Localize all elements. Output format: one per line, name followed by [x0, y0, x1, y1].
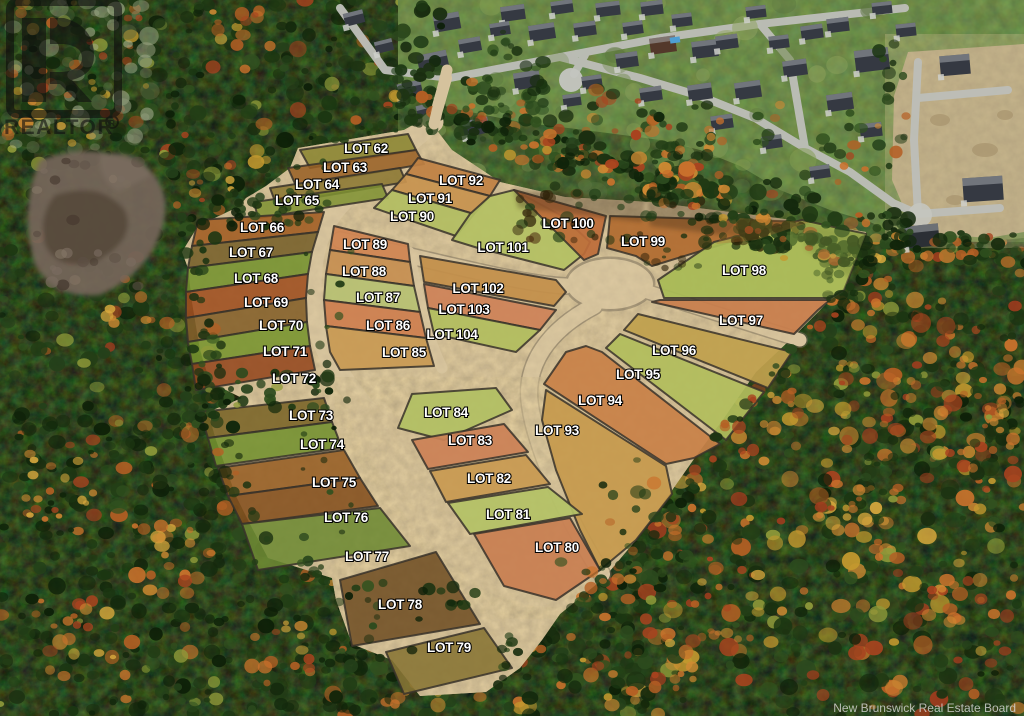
svg-text:LOT 98: LOT 98 [722, 263, 767, 278]
svg-text:LOT 100: LOT 100 [542, 216, 593, 231]
svg-text:LOT 80: LOT 80 [535, 540, 579, 555]
svg-text:LOT 103: LOT 103 [438, 302, 490, 317]
svg-text:LOT 67: LOT 67 [229, 245, 273, 260]
svg-text:LOT 99: LOT 99 [621, 234, 665, 249]
svg-text:LOT 97: LOT 97 [719, 313, 763, 328]
svg-text:LOT 94: LOT 94 [578, 393, 623, 408]
svg-text:LOT 102: LOT 102 [452, 281, 503, 296]
svg-text:LOT 92: LOT 92 [439, 173, 483, 188]
svg-text:REALTOR: REALTOR [4, 116, 114, 139]
svg-text:LOT 64: LOT 64 [295, 177, 340, 192]
svg-text:LOT 81: LOT 81 [486, 507, 531, 522]
svg-text:LOT 75: LOT 75 [312, 475, 357, 490]
svg-text:LOT 89: LOT 89 [343, 237, 387, 252]
svg-text:LOT 63: LOT 63 [323, 160, 368, 175]
svg-text:LOT 86: LOT 86 [366, 318, 411, 333]
svg-text:R: R [109, 118, 115, 128]
svg-text:LOT 101: LOT 101 [477, 240, 529, 255]
svg-text:LOT 96: LOT 96 [652, 343, 697, 358]
svg-text:LOT 66: LOT 66 [240, 220, 285, 235]
svg-text:LOT 76: LOT 76 [324, 510, 369, 525]
svg-text:LOT 71: LOT 71 [263, 344, 308, 359]
svg-text:LOT 90: LOT 90 [390, 209, 434, 224]
svg-text:LOT 84: LOT 84 [424, 405, 469, 420]
svg-text:LOT 83: LOT 83 [448, 433, 493, 448]
svg-text:LOT 91: LOT 91 [408, 191, 453, 206]
svg-text:LOT 73: LOT 73 [289, 408, 334, 423]
svg-text:LOT 69: LOT 69 [244, 295, 288, 310]
svg-text:LOT 65: LOT 65 [275, 193, 320, 208]
svg-text:LOT 70: LOT 70 [259, 318, 303, 333]
svg-text:LOT 62: LOT 62 [344, 141, 388, 156]
svg-text:LOT 88: LOT 88 [342, 264, 387, 279]
svg-text:LOT 68: LOT 68 [234, 271, 279, 286]
svg-text:LOT 74: LOT 74 [300, 437, 345, 452]
svg-text:LOT 77: LOT 77 [345, 549, 389, 564]
svg-text:LOT 87: LOT 87 [356, 290, 400, 305]
svg-text:LOT 104: LOT 104 [426, 327, 478, 342]
svg-text:LOT 78: LOT 78 [378, 597, 423, 612]
svg-text:LOT 85: LOT 85 [382, 345, 427, 360]
svg-text:LOT 82: LOT 82 [467, 471, 511, 486]
svg-text:LOT 95: LOT 95 [616, 367, 661, 382]
svg-text:New Brunswick Real Estate Boar: New Brunswick Real Estate Board [833, 701, 1016, 715]
svg-text:LOT 93: LOT 93 [535, 423, 580, 438]
svg-text:LOT 79: LOT 79 [427, 640, 471, 655]
svg-text:LOT 72: LOT 72 [272, 371, 316, 386]
